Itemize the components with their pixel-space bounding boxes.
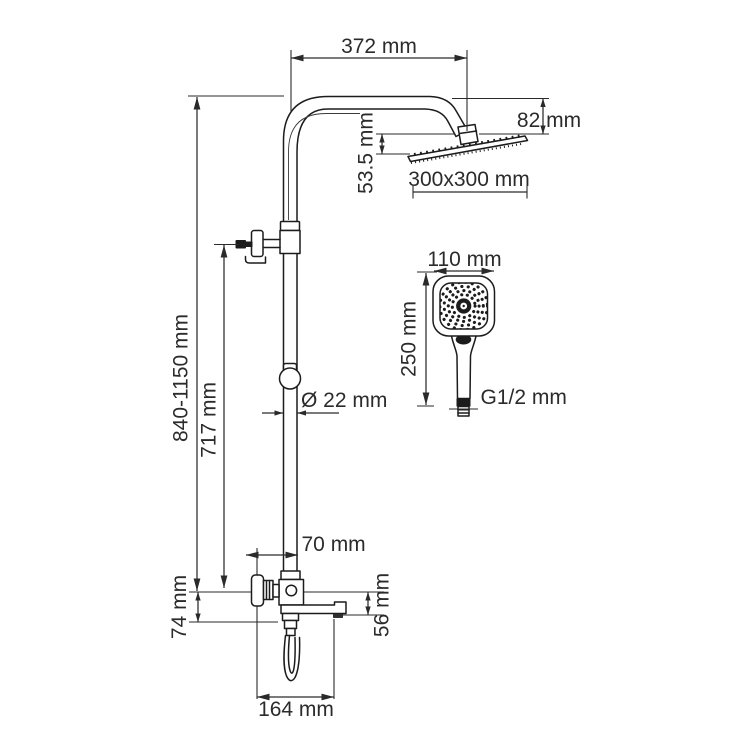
handshower-thread: [458, 407, 469, 417]
bracket-flange: [252, 231, 264, 257]
spout-aerator: [334, 614, 343, 618]
column-height-label: 840-1150 mm: [170, 314, 193, 442]
mixer-valve: [252, 571, 304, 606]
valve-offset-label: 70 mm: [302, 533, 366, 556]
mixer-handle: [252, 575, 264, 606]
spout-reach-label: 164 mm: [258, 698, 334, 721]
shower-system-diagram: 372 mm 82 mm 53.5 mm 300x300 mm 110 mm 2…: [0, 0, 750, 750]
shower-head-connector: [458, 125, 478, 145]
holder-height-label: 717 mm: [198, 382, 221, 458]
arm-reach-label: 372 mm: [341, 35, 417, 58]
bracket-tee: [280, 231, 300, 254]
handshower-cone: [457, 399, 471, 407]
spout-height-right-label: 56 mm: [371, 573, 394, 637]
technical-drawing-page: 372 mm 82 mm 53.5 mm 300x300 mm 110 mm 2…: [0, 0, 750, 750]
handle-knurl: [264, 581, 274, 600]
shower-hose: [283, 614, 300, 681]
slider-knob: [280, 368, 301, 389]
head-height-label: 82 mm: [517, 109, 581, 132]
overhead-shower: [408, 125, 528, 164]
spout-height-left-label: 74 mm: [168, 575, 191, 639]
pipe-diameter-label: Ø 22 mm: [301, 389, 387, 412]
head-size-label: 300x300 mm: [408, 168, 529, 191]
handshower-length-label: 250 mm: [398, 301, 421, 377]
thread-label: G1/2 mm: [481, 386, 567, 409]
head-offset-label: 53.5 mm: [355, 112, 378, 194]
mixer-body: [279, 580, 304, 606]
handshower-hook: [246, 257, 266, 264]
handshower-width-label: 110 mm: [427, 248, 501, 271]
